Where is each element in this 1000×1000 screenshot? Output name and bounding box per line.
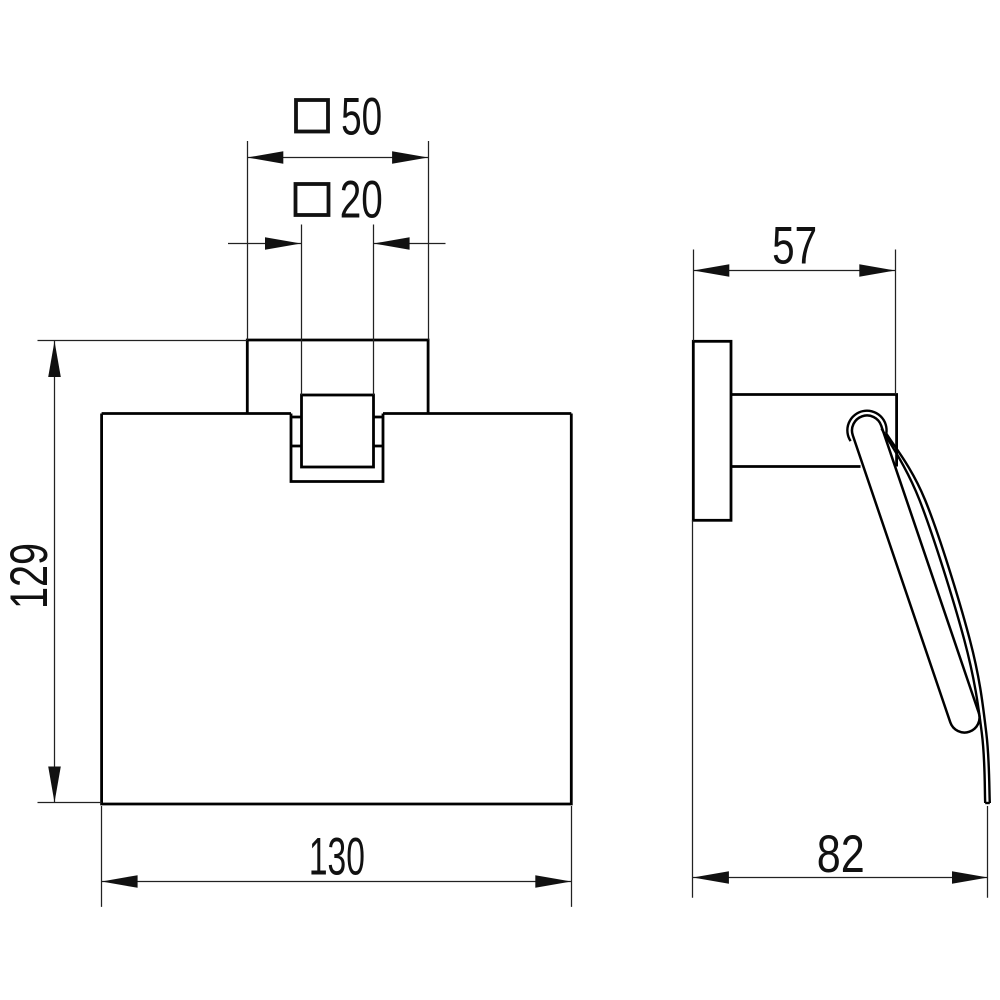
svg-text:129: 129 (0, 543, 59, 609)
svg-text:50: 50 (341, 88, 382, 147)
svg-text:57: 57 (772, 217, 817, 276)
svg-text:82: 82 (817, 825, 865, 884)
svg-text:130: 130 (309, 828, 365, 887)
svg-text:20: 20 (340, 171, 383, 230)
